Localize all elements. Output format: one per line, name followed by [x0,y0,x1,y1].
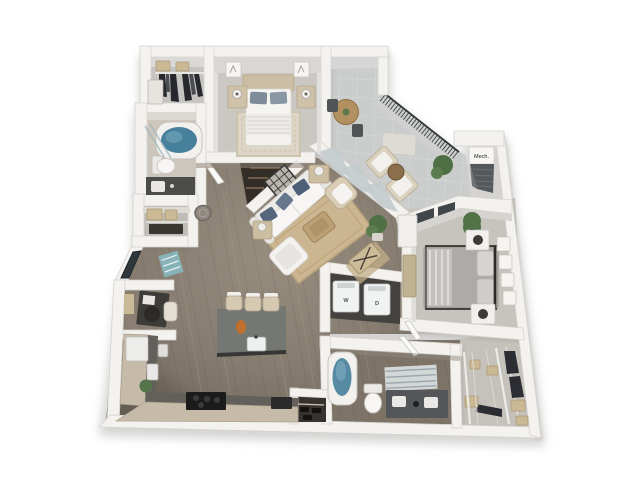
svg-text:Mech.: Mech. [474,154,489,160]
svg-text:D: D [375,301,379,307]
svg-text:W: W [343,298,349,304]
